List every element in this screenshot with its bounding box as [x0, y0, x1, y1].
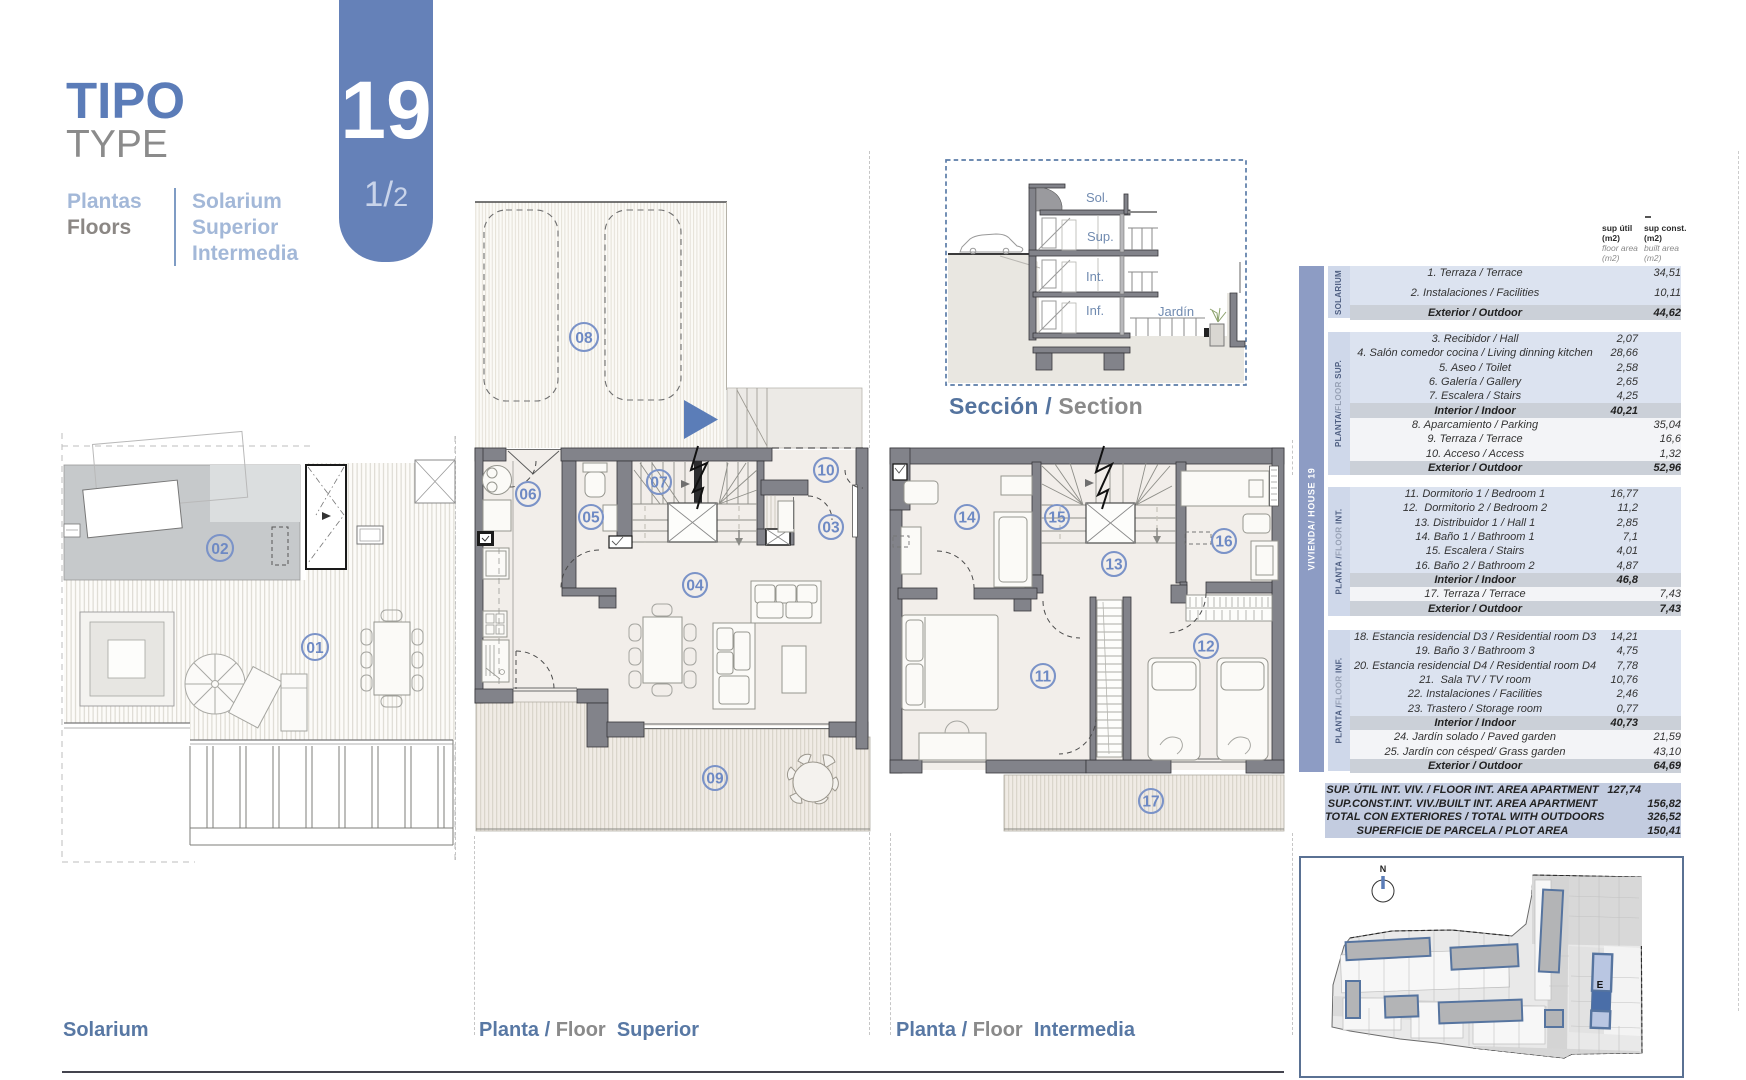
svg-text:Int.: Int. [1086, 269, 1104, 284]
svg-text:02: 02 [211, 541, 228, 558]
svg-text:06: 06 [519, 487, 537, 504]
svg-text:Sol.: Sol. [1086, 190, 1108, 205]
svg-text:N: N [1380, 864, 1387, 874]
svg-text:15: 15 [1048, 510, 1066, 527]
svg-text:13: 13 [1105, 557, 1123, 574]
svg-text:09: 09 [706, 771, 724, 788]
svg-text:11: 11 [1035, 669, 1052, 686]
svg-text:08: 08 [575, 330, 593, 347]
svg-text:Jardín: Jardín [1158, 304, 1194, 319]
svg-text:16: 16 [1215, 534, 1233, 551]
svg-text:03: 03 [822, 520, 840, 537]
svg-text:01: 01 [306, 640, 324, 657]
svg-text:10: 10 [817, 463, 834, 480]
svg-text:Inf.: Inf. [1086, 303, 1104, 318]
svg-text:12: 12 [1197, 639, 1214, 656]
svg-text:17: 17 [1142, 794, 1159, 811]
svg-text:E: E [1597, 980, 1604, 991]
svg-text:05: 05 [582, 510, 600, 527]
svg-text:Sup.: Sup. [1087, 229, 1114, 244]
svg-text:04: 04 [686, 578, 704, 595]
svg-text:07: 07 [650, 475, 667, 492]
svg-text:14: 14 [958, 510, 976, 527]
